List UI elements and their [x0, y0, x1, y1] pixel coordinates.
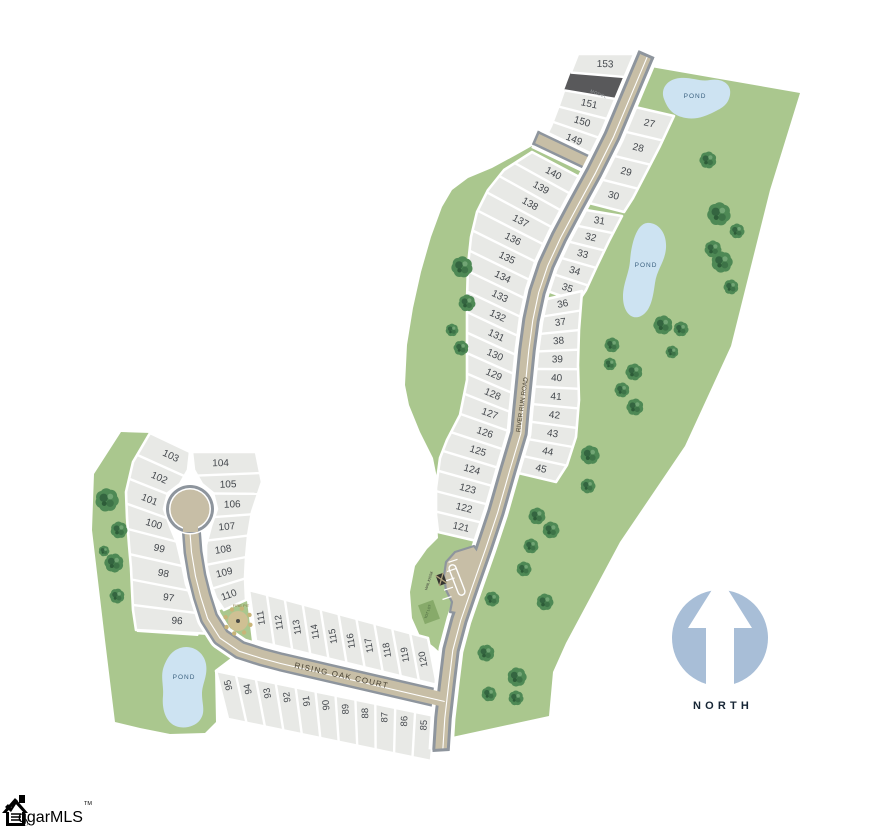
- svg-text:41: 41: [550, 391, 562, 403]
- svg-text:90: 90: [321, 699, 333, 710]
- svg-text:94: 94: [242, 683, 255, 696]
- svg-text:NORTH: NORTH: [693, 700, 753, 712]
- svg-text:107: 107: [218, 521, 236, 533]
- svg-text:104: 104: [212, 458, 229, 469]
- svg-text:40: 40: [551, 373, 563, 384]
- svg-text:114: 114: [309, 623, 322, 640]
- svg-text:88: 88: [360, 708, 371, 719]
- svg-text:93: 93: [262, 687, 275, 699]
- svg-text:96: 96: [171, 615, 183, 627]
- svg-text:106: 106: [224, 499, 241, 511]
- svg-text:37: 37: [554, 317, 567, 329]
- svg-text:89: 89: [340, 704, 352, 715]
- svg-text:92: 92: [281, 691, 293, 703]
- svg-text:116: 116: [345, 632, 358, 649]
- svg-text:POND: POND: [173, 674, 196, 681]
- svg-text:TM: TM: [84, 801, 92, 807]
- svg-text:POND: POND: [684, 93, 707, 100]
- svg-text:115: 115: [327, 628, 340, 645]
- svg-text:43: 43: [546, 428, 559, 441]
- svg-text:38: 38: [553, 336, 565, 348]
- svg-text:111: 111: [255, 610, 268, 626]
- svg-text:ggarMLS: ggarMLS: [18, 809, 83, 826]
- svg-text:39: 39: [552, 354, 564, 365]
- svg-text:POND: POND: [635, 262, 658, 269]
- svg-text:112: 112: [273, 614, 286, 631]
- svg-text:105: 105: [220, 479, 237, 491]
- svg-text:87: 87: [380, 712, 391, 723]
- svg-text:97: 97: [162, 592, 175, 605]
- svg-text:FIRE PIT: FIRE PIT: [233, 603, 250, 608]
- svg-text:85: 85: [418, 720, 430, 731]
- svg-text:42: 42: [548, 410, 561, 422]
- svg-text:153: 153: [597, 59, 614, 71]
- svg-text:113: 113: [291, 619, 304, 636]
- svg-text:86: 86: [399, 716, 410, 727]
- svg-text:91: 91: [301, 695, 313, 707]
